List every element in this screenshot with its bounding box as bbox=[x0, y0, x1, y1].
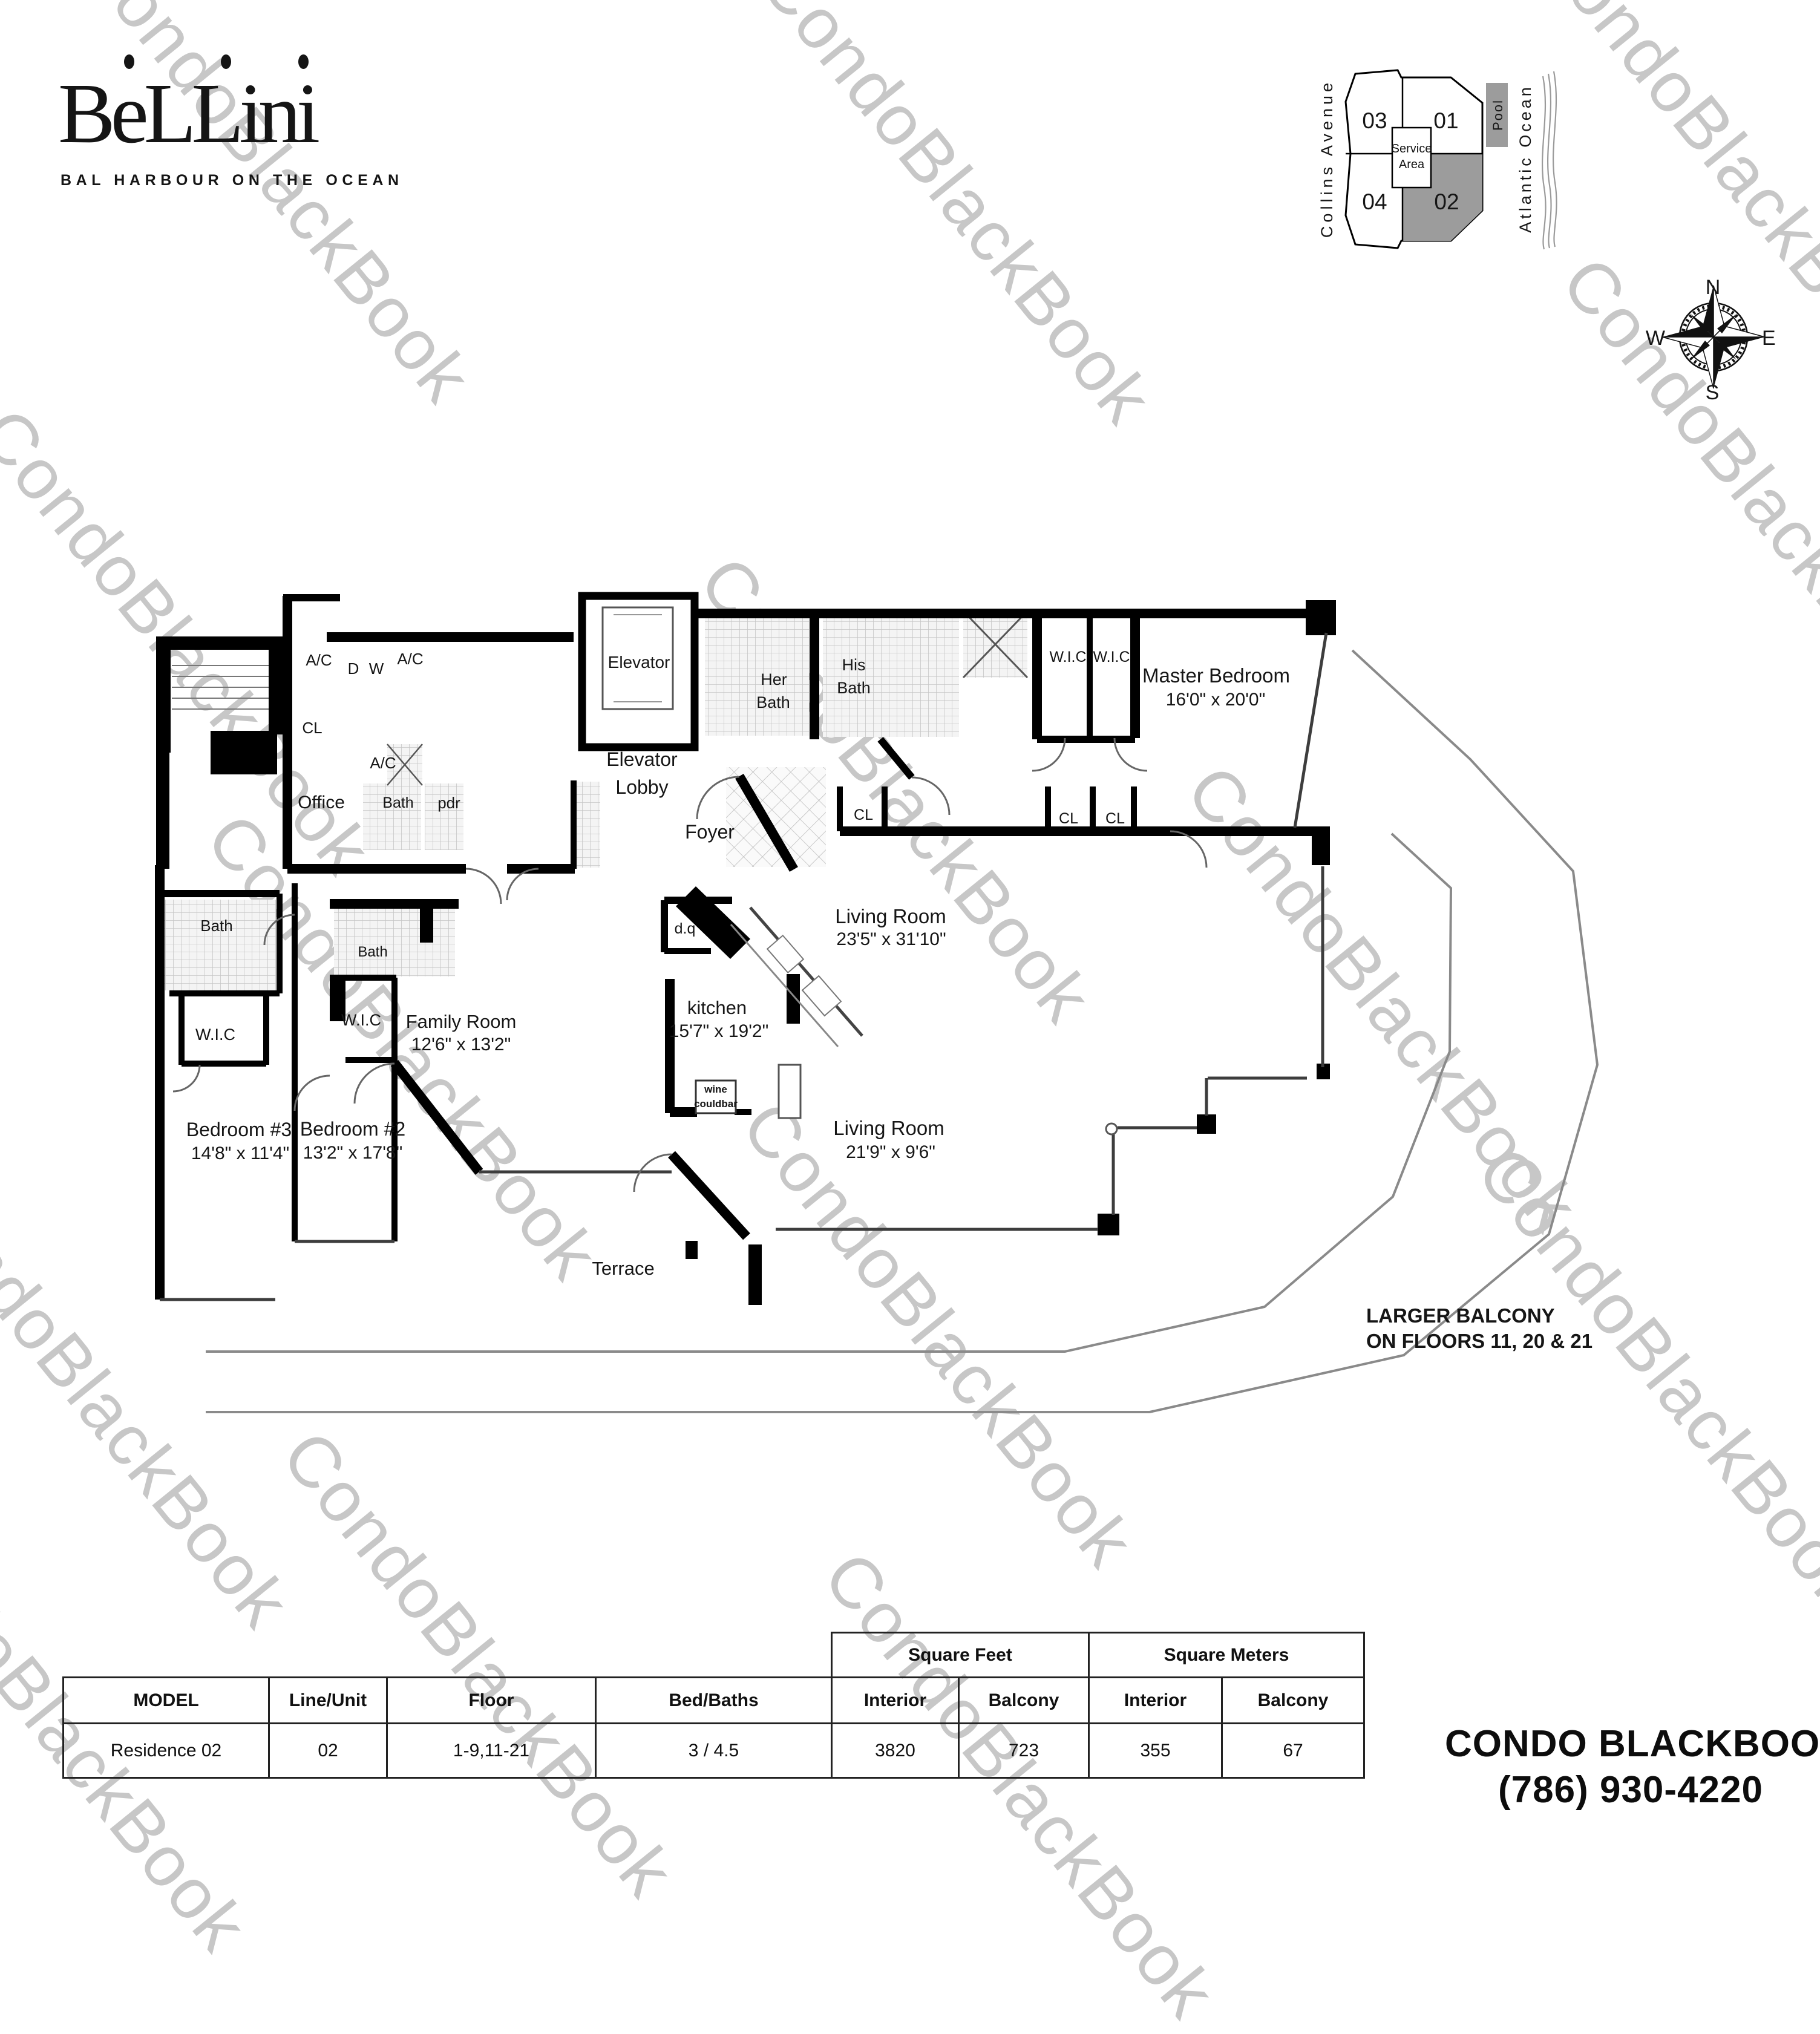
room-label: 12'6" x 13'2" bbox=[411, 1035, 511, 1055]
room-label: CL bbox=[854, 806, 873, 823]
keyplan-unit-label: 03 bbox=[1362, 108, 1387, 133]
cell-interior-m: 355 bbox=[1089, 1724, 1222, 1778]
room-label: Bedroom #3 bbox=[186, 1119, 292, 1140]
col-header-line-unit: Line/Unit bbox=[269, 1678, 387, 1724]
room-label: LARGER BALCONY bbox=[1366, 1304, 1555, 1327]
keyplan-unit-label: 04 bbox=[1362, 189, 1387, 214]
room-label: 23'5" x 31'10" bbox=[836, 929, 946, 949]
compass-w-label: W bbox=[1646, 327, 1665, 350]
company-name: CONDO BLACKBOOK bbox=[1445, 1725, 1816, 1763]
floor-plan: A/CDWA/CCLA/COfficeBathpdrElevatorElevat… bbox=[156, 596, 1597, 1412]
cell-balcony-m: 67 bbox=[1222, 1724, 1364, 1778]
col-header-balcony-m: Balcony bbox=[1222, 1678, 1364, 1724]
compass-e-label: E bbox=[1762, 327, 1776, 350]
room-label: Her bbox=[761, 670, 787, 688]
keyplan: 03 01 04 02 Service Area Collins Avenue … bbox=[1318, 70, 1557, 249]
room-label: Living Room bbox=[835, 905, 946, 927]
room-label: D bbox=[348, 659, 359, 678]
col-header-floor: Floor bbox=[387, 1678, 596, 1724]
room-label: Family Room bbox=[406, 1011, 517, 1032]
room-label: Master Bedroom bbox=[1142, 664, 1290, 687]
cell-line-unit: 02 bbox=[269, 1724, 387, 1778]
room-label: Bath bbox=[200, 917, 233, 935]
keyplan-pool-label: Pool bbox=[1490, 99, 1505, 131]
cell-balcony-ft: 723 bbox=[959, 1724, 1089, 1778]
room-label: Bath bbox=[382, 794, 413, 811]
room-label: Bath bbox=[756, 693, 790, 711]
room-label: A/C bbox=[370, 754, 396, 772]
door-hinge bbox=[1106, 1123, 1117, 1134]
compass-s-label: S bbox=[1706, 381, 1720, 404]
room-label: W bbox=[369, 659, 384, 678]
room-label: A/C bbox=[306, 651, 332, 669]
unit-spec-table: Square Feet Square Meters MODEL Line/Uni… bbox=[62, 1632, 1365, 1779]
fridge bbox=[779, 1065, 800, 1118]
cell-interior-ft: 3820 bbox=[832, 1724, 959, 1778]
cell-floor: 1-9,11-21 bbox=[387, 1724, 596, 1778]
service-core bbox=[156, 636, 284, 869]
col-header-interior-ft: Interior bbox=[832, 1678, 959, 1724]
room-label: pdr bbox=[437, 794, 460, 812]
col-header-bed-baths: Bed/Baths bbox=[596, 1678, 832, 1724]
room-label: Terrace bbox=[592, 1258, 654, 1279]
room-label: W.I.C bbox=[1093, 649, 1130, 665]
room-label: CL bbox=[1059, 810, 1078, 827]
col-header-model: MODEL bbox=[64, 1678, 269, 1724]
room-label: Elevator bbox=[608, 653, 670, 672]
room-label: Bath bbox=[358, 944, 387, 960]
room-label: Living Room bbox=[833, 1117, 944, 1139]
keyplan-unit-label-highlighted: 02 bbox=[1434, 189, 1459, 214]
keyplan-street-label: Collins Avenue bbox=[1318, 79, 1336, 238]
room-label: 16'0" x 20'0" bbox=[1166, 690, 1266, 710]
room-label: 14'8" x 11'4" bbox=[191, 1143, 289, 1163]
floor-plan-sheet: 03 01 04 02 Service Area Collins Avenue … bbox=[0, 0, 1820, 1818]
room-label: Lobby bbox=[615, 776, 668, 798]
keyplan-service-label: Area bbox=[1399, 158, 1425, 171]
room-label: His bbox=[842, 656, 866, 674]
cell-model: Residence 02 bbox=[64, 1724, 269, 1778]
phone-number: (786) 930-4220 bbox=[1445, 1771, 1816, 1809]
room-label: Foyer bbox=[685, 821, 735, 843]
compass-n-label: N bbox=[1706, 276, 1721, 299]
room-label: Bath bbox=[837, 679, 871, 697]
room-label: couldbar bbox=[694, 1098, 738, 1110]
room-label: CL bbox=[302, 719, 322, 737]
group-header-square-meters: Square Meters bbox=[1089, 1633, 1364, 1678]
table-group-header-row: Square Feet Square Meters bbox=[64, 1633, 1364, 1678]
room-label: 21'9" x 9'6" bbox=[846, 1142, 935, 1162]
keyplan-service-label: Service bbox=[1392, 142, 1432, 155]
cell-bed-baths: 3 / 4.5 bbox=[596, 1724, 832, 1778]
keyplan-ocean-label: Atlantic Ocean bbox=[1516, 84, 1534, 233]
room-label: Office bbox=[298, 793, 345, 813]
compass-rose-icon: N E S W bbox=[1646, 276, 1776, 404]
room-label: Bedroom #2 bbox=[300, 1118, 405, 1140]
room-label: W.I.C bbox=[195, 1025, 235, 1044]
room-label: Elevator bbox=[606, 748, 678, 770]
keyplan-unit-label: 01 bbox=[1433, 108, 1458, 133]
table-row: Residence 02 02 1-9,11-21 3 / 4.5 3820 7… bbox=[64, 1724, 1364, 1778]
room-label: 15'7" x 19'2" bbox=[669, 1021, 769, 1041]
room-label: W.I.C bbox=[341, 1011, 381, 1029]
room-label: 13'2" x 17'8" bbox=[303, 1143, 403, 1163]
ocean-waves-icon bbox=[1542, 71, 1556, 249]
room-label: CL bbox=[1105, 810, 1125, 827]
col-header-interior-m: Interior bbox=[1089, 1678, 1222, 1724]
elevator bbox=[582, 596, 695, 747]
room-label: A/C bbox=[397, 650, 423, 668]
room-label: kitchen bbox=[687, 997, 747, 1018]
contact-block: CONDO BLACKBOOK (786) 930-4220 bbox=[1445, 1725, 1816, 1817]
table-header-row: MODEL Line/Unit Floor Bed/Baths Interior… bbox=[64, 1678, 1364, 1724]
group-header-square-feet: Square Feet bbox=[832, 1633, 1089, 1678]
room-label: ON FLOORS 11, 20 & 21 bbox=[1366, 1330, 1592, 1352]
room-label: W.I.C bbox=[1049, 649, 1086, 665]
col-header-balcony-ft: Balcony bbox=[959, 1678, 1089, 1724]
room-label: d.q bbox=[675, 920, 696, 937]
room-label: wine bbox=[704, 1084, 727, 1095]
